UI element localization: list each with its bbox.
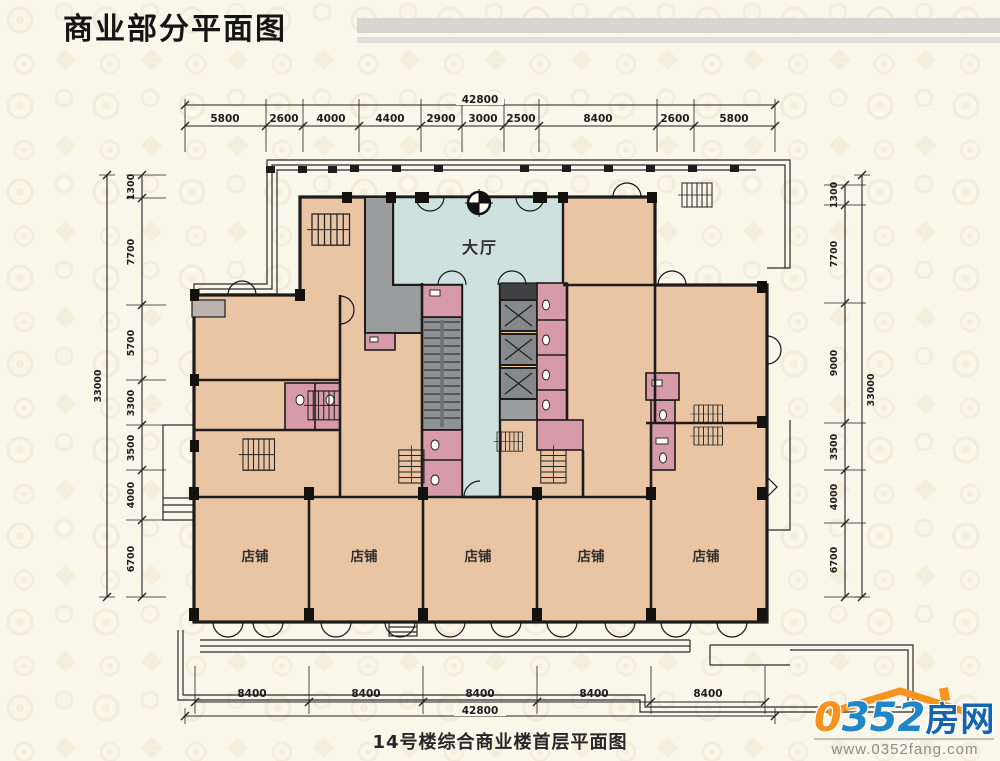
dim-value: 4000	[126, 481, 137, 508]
page-title: 商业部分平面图	[63, 4, 287, 48]
dim-bottom-total: 42800	[462, 705, 499, 717]
room-label-shop: 店铺	[351, 548, 378, 565]
dim-value: 2900	[426, 113, 455, 125]
dim-value: 8400	[583, 113, 612, 125]
dim-value: 6700	[829, 546, 840, 573]
dim-value: 8400	[465, 688, 494, 700]
room-label-shop: 店铺	[242, 548, 269, 565]
dim-value: 9000	[829, 349, 840, 376]
dim-value: 5800	[210, 113, 239, 125]
dim-value: 3300	[126, 389, 137, 416]
service-desk	[192, 300, 225, 317]
logo-divider	[814, 738, 994, 740]
title-underline-bar-thin	[357, 37, 1000, 43]
dimension-right	[824, 171, 870, 601]
logo-name-cn: 房网	[925, 700, 995, 740]
dim-value: 3000	[468, 113, 497, 125]
room-label-shop: 店铺	[693, 548, 721, 565]
dim-value: 8400	[351, 688, 380, 700]
dim-value: 3500	[126, 434, 137, 461]
dim-right-total: 33000	[866, 373, 877, 406]
dim-value: 2600	[660, 113, 689, 125]
site-logo[interactable]: 0352房网 www.0352fang.com	[812, 686, 998, 758]
room-label-lobby: 大厅	[462, 238, 498, 257]
dim-value: 5700	[126, 329, 137, 356]
title-underline-bar	[357, 18, 1000, 33]
dim-top-total: 42800	[462, 94, 499, 106]
dim-value: 2600	[269, 113, 298, 125]
logo-zero: 0	[814, 695, 842, 741]
logo-wordmark: 0352房网	[814, 698, 995, 740]
dim-value: 8400	[693, 688, 722, 700]
dim-value: 4400	[375, 113, 404, 125]
dim-value: 7700	[829, 240, 840, 267]
dim-value: 1300	[126, 173, 137, 200]
dim-value: 8400	[237, 688, 266, 700]
dim-value: 2500	[506, 113, 535, 125]
room-label-shop: 店铺	[465, 548, 492, 565]
dim-value: 5800	[719, 113, 748, 125]
dimension-left	[99, 171, 166, 601]
logo-number: 352	[842, 695, 926, 741]
dim-value: 1300	[829, 181, 840, 208]
floor-plan: 大厅 店铺 店铺 店铺 店铺 店铺 42800 5800 2600 4000 4…	[0, 0, 1000, 761]
window-ticks	[266, 165, 739, 173]
dim-value: 6700	[126, 545, 137, 572]
dim-value: 4000	[829, 483, 840, 510]
logo-url: www.0352fang.com	[812, 741, 998, 758]
dim-value: 3500	[829, 433, 840, 460]
dim-value: 7700	[126, 238, 137, 265]
dim-left-total: 33000	[93, 369, 104, 402]
dim-value: 4000	[316, 113, 345, 125]
room-label-shop: 店铺	[578, 548, 606, 565]
elevator-icons	[500, 300, 537, 399]
dim-value: 8400	[579, 688, 608, 700]
